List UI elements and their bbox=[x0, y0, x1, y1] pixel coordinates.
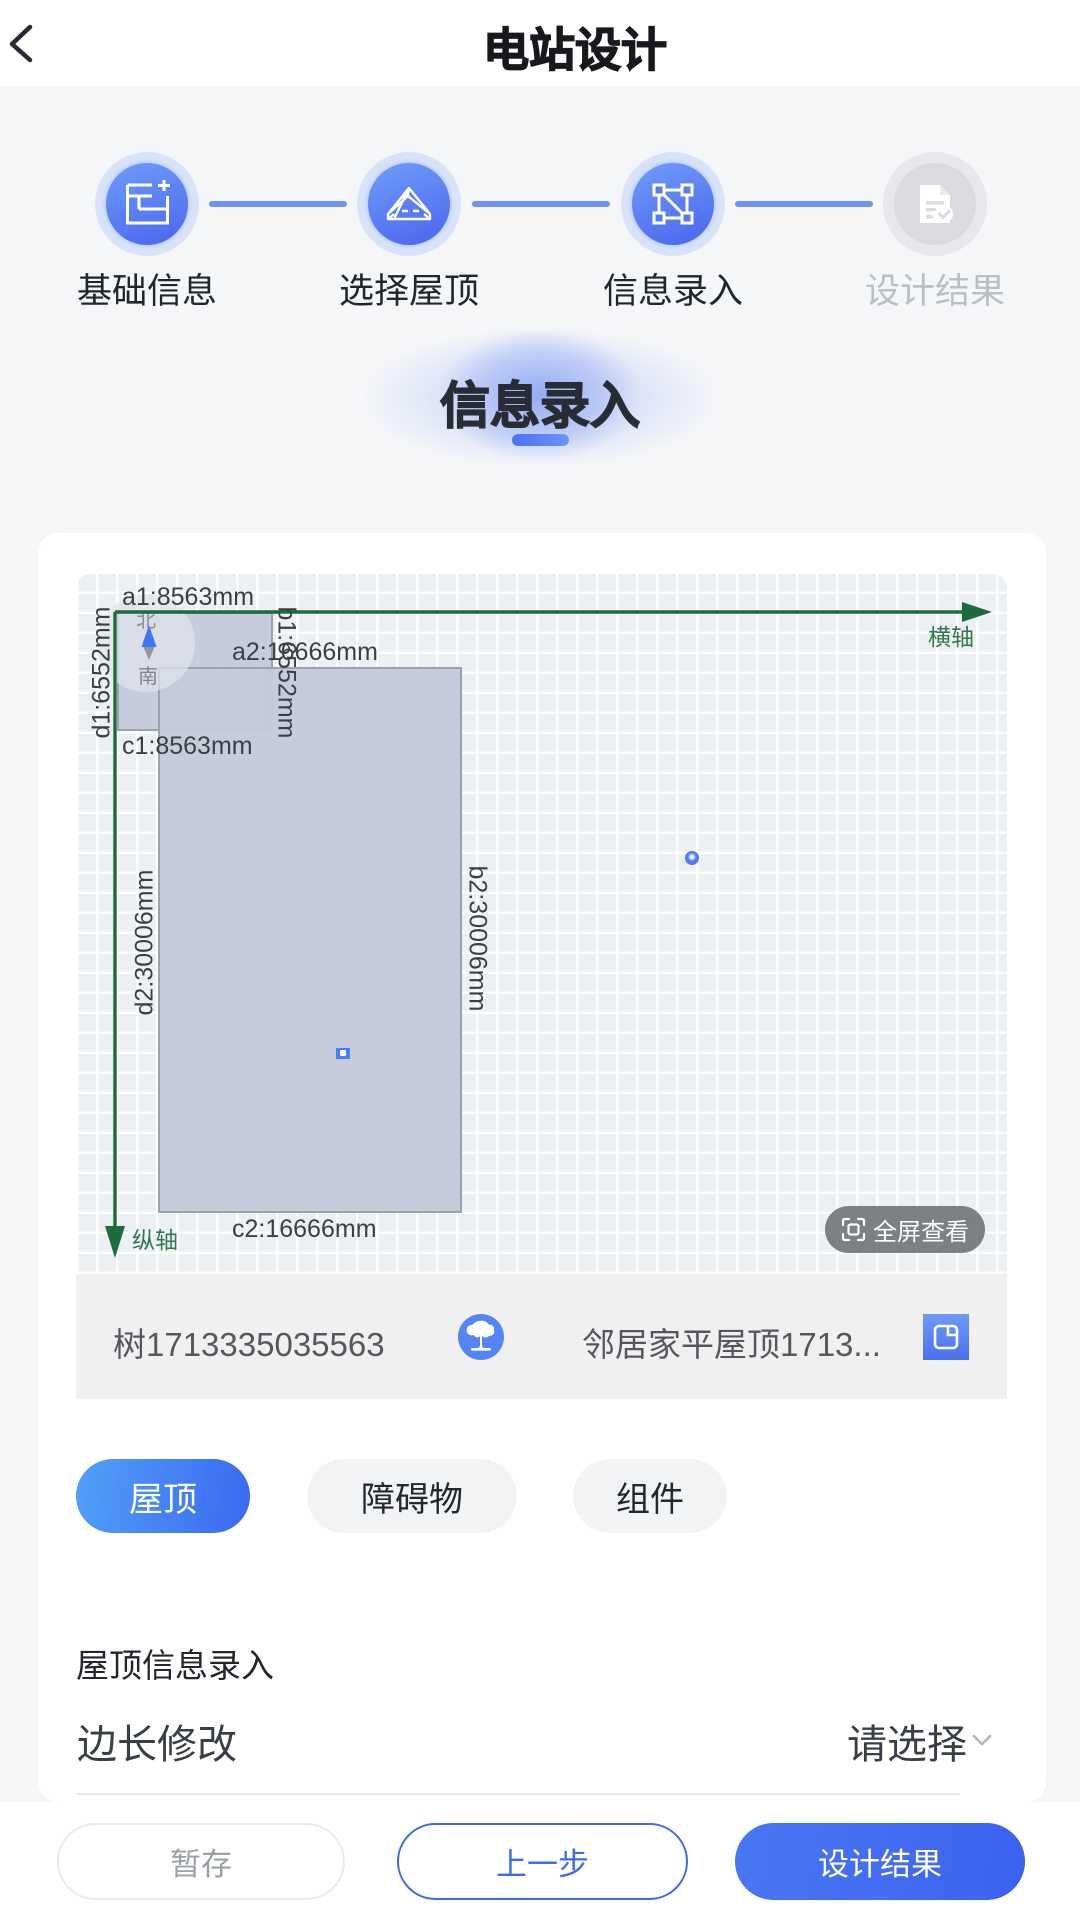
svg-text:横轴: 横轴 bbox=[928, 624, 974, 650]
svg-text:纵轴: 纵轴 bbox=[132, 1227, 178, 1253]
